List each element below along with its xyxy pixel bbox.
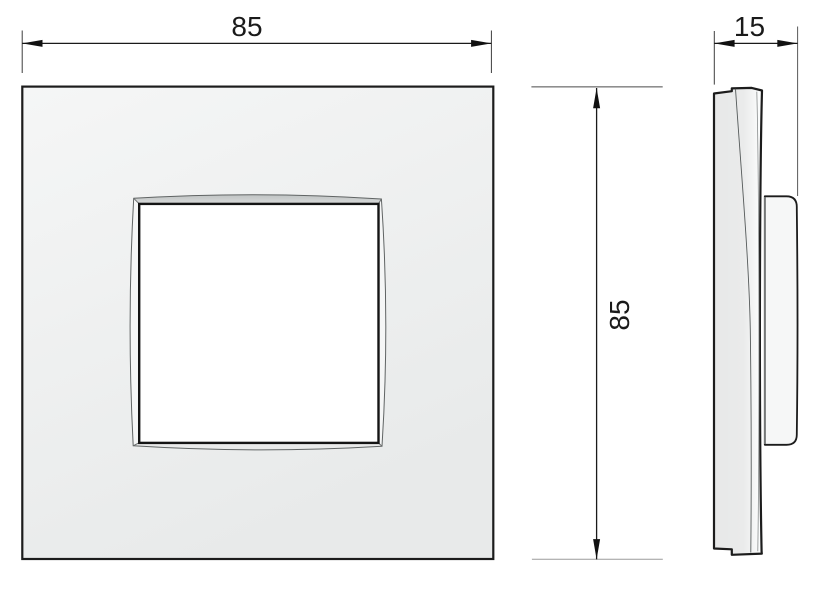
svg-text:85: 85: [231, 11, 262, 42]
svg-text:15: 15: [734, 11, 765, 42]
svg-text:85: 85: [604, 299, 635, 330]
